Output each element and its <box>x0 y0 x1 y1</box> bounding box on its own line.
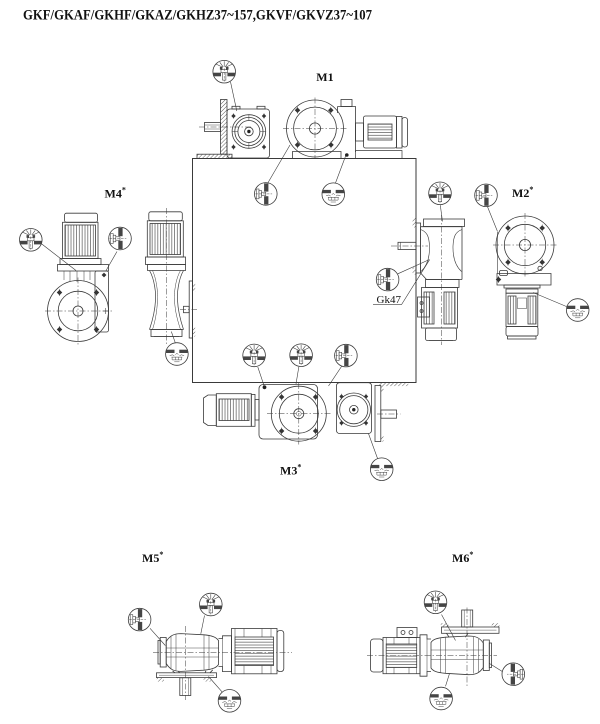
svg-text:M1: M1 <box>316 70 333 84</box>
svg-text:M6*: M6* <box>452 550 473 565</box>
svg-text:M4*: M4* <box>105 186 126 201</box>
svg-text:M5*: M5* <box>142 550 163 565</box>
svg-text:GKF/GKAF/GKHF/GKAZ/GKHZ37~157,: GKF/GKAF/GKHF/GKAZ/GKHZ37~157,GKVF/GKVZ3… <box>23 8 372 24</box>
svg-text:M2*: M2* <box>512 185 533 200</box>
svg-text:Gk47: Gk47 <box>377 294 402 306</box>
svg-text:M3*: M3* <box>280 463 301 478</box>
